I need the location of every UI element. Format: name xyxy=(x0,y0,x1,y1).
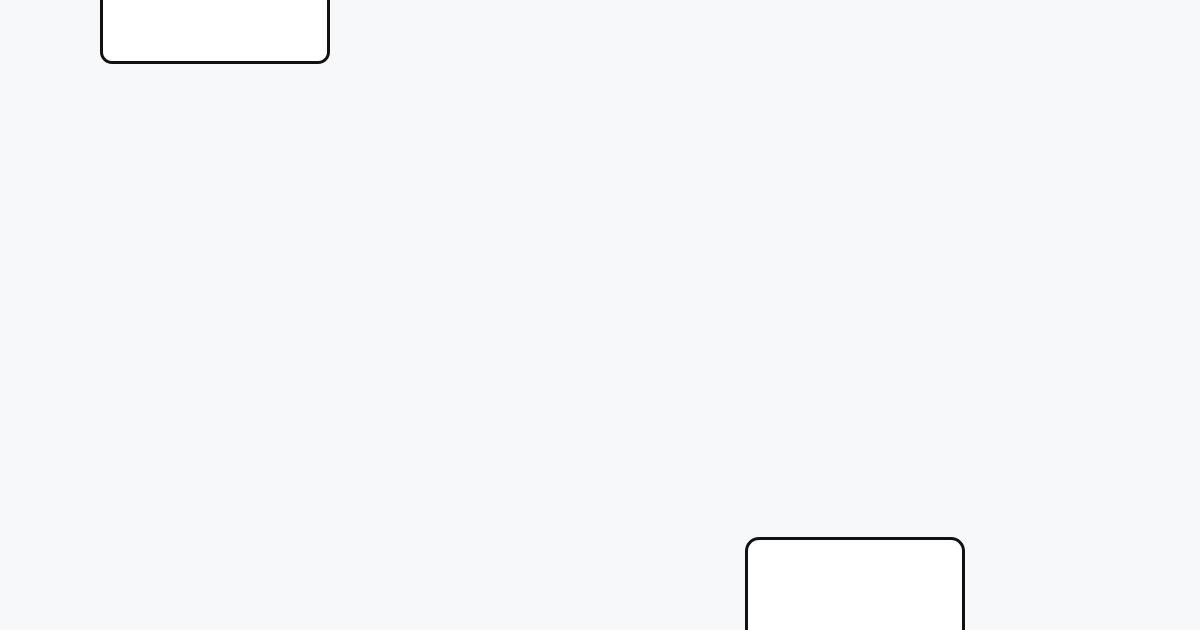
revision-info-box xyxy=(100,0,330,64)
map-base-canvas xyxy=(0,0,1200,630)
site-address-box xyxy=(745,537,965,630)
map-viewport[interactable] xyxy=(0,0,1200,630)
